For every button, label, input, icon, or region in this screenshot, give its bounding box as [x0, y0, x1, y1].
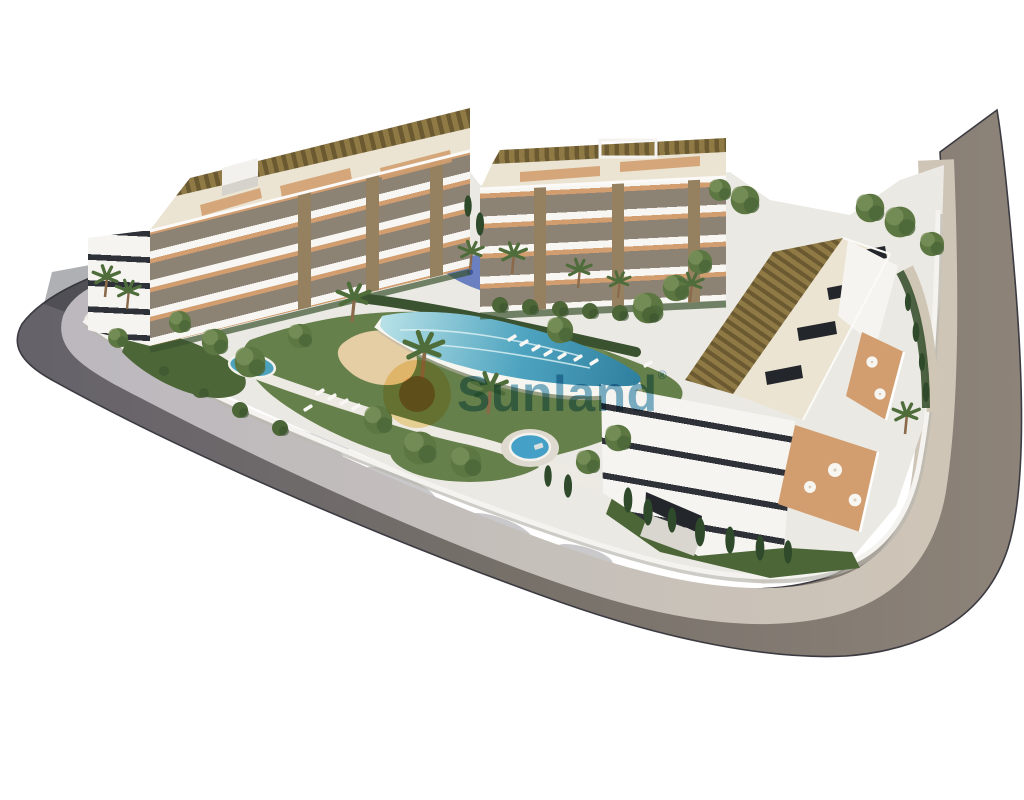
cypress-tree: [784, 540, 792, 563]
cypress-tree: [624, 487, 633, 512]
cypress-tree: [923, 382, 930, 402]
building-a-pillar: [298, 192, 311, 310]
cypress-tree: [544, 465, 551, 487]
tree: [885, 207, 916, 238]
tree: [688, 250, 712, 274]
cypress-tree: [913, 322, 920, 342]
cypress-tree: [464, 195, 471, 217]
tree: [108, 328, 128, 348]
tree: [202, 329, 228, 355]
tree: [451, 447, 482, 478]
tree: [288, 324, 312, 348]
cypress-tree: [668, 507, 677, 532]
cypress-tree: [905, 293, 911, 311]
umbrella-icon: [866, 356, 877, 367]
tree: [235, 347, 266, 378]
cypress-tree: [476, 212, 484, 235]
cypress-tree: [695, 518, 705, 547]
umbrella-icon: [804, 481, 816, 493]
umbrella-icon: [874, 388, 885, 399]
building-a-pillar: [366, 175, 379, 293]
render-canvas: Sunland ®: [0, 0, 1024, 800]
cypress-tree: [643, 499, 652, 526]
jacuzzi-pool: [501, 429, 559, 467]
tree: [364, 406, 393, 435]
cypress-tree: [725, 527, 734, 554]
tree: [547, 317, 573, 343]
tree: [731, 186, 760, 215]
tree: [709, 179, 731, 201]
tree: [605, 425, 631, 451]
umbrella-icon: [849, 494, 862, 507]
cypress-tree: [756, 535, 765, 560]
scene-render: [0, 0, 1024, 800]
tree: [920, 232, 944, 256]
tree: [169, 311, 191, 333]
cypress-tree: [919, 353, 925, 371]
building-a-pillar: [430, 159, 443, 278]
building-b-pillar: [534, 186, 546, 310]
cypress-tree: [564, 474, 572, 497]
umbrella-icon: [828, 463, 842, 477]
tree: [404, 432, 437, 465]
tree: [576, 450, 600, 474]
tree: [856, 194, 885, 223]
